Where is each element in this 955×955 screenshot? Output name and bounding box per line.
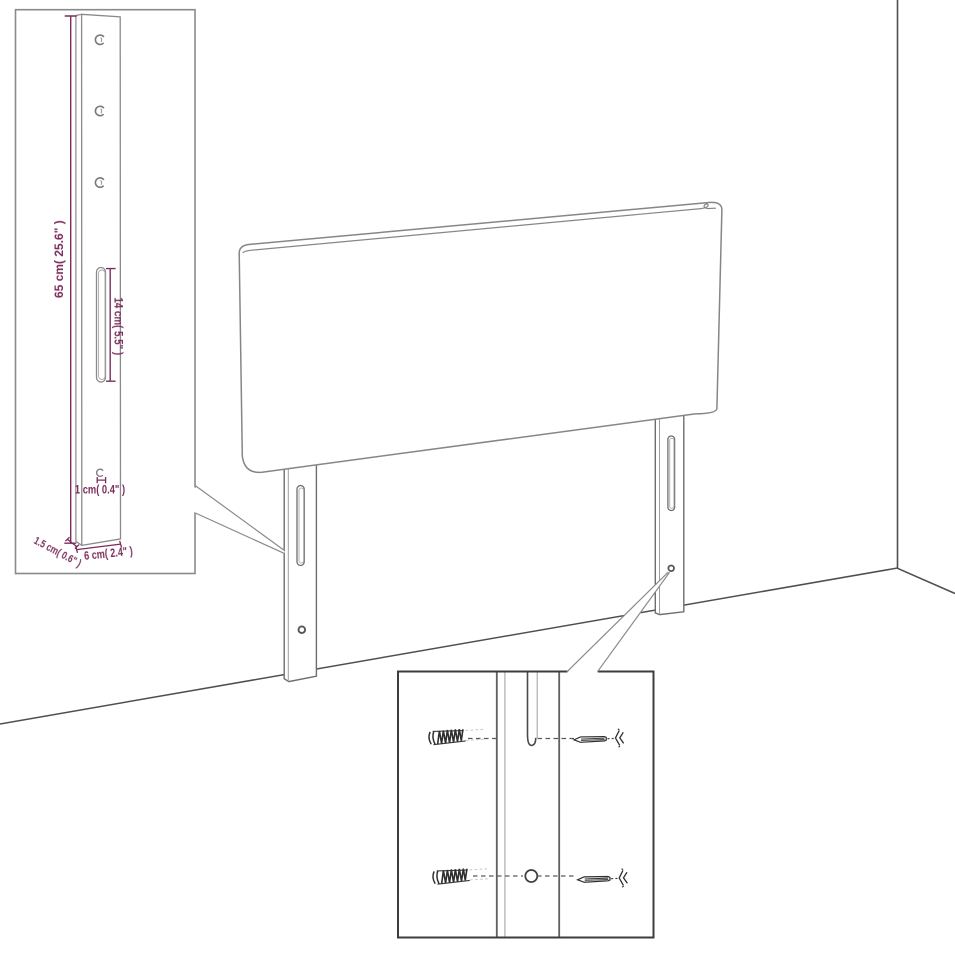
svg-text:1 cm( 0.4" ): 1 cm( 0.4" ) — [75, 483, 126, 496]
svg-text:14 cm( 5.5" ): 14 cm( 5.5" ) — [111, 297, 124, 355]
svg-text:65 cm( 25.6" ): 65 cm( 25.6" ) — [52, 220, 66, 298]
